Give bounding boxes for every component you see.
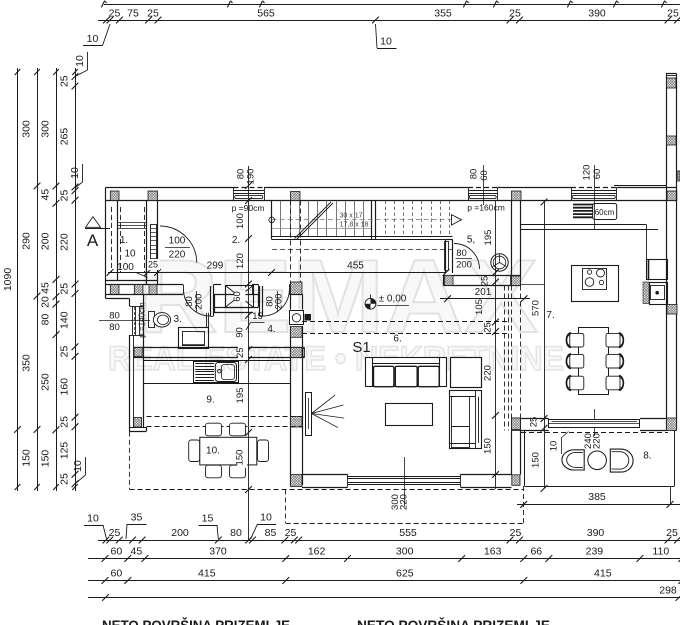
svg-text:10: 10: [69, 167, 81, 179]
svg-text:10: 10: [72, 460, 84, 472]
svg-text:10: 10: [380, 36, 392, 48]
svg-text:150: 150: [483, 438, 494, 454]
svg-text:200: 200: [194, 294, 205, 310]
svg-text:150: 150: [40, 450, 52, 468]
svg-text:A: A: [87, 231, 99, 250]
svg-text:S1: S1: [352, 339, 370, 356]
svg-text:100: 100: [169, 236, 186, 247]
svg-text:25: 25: [59, 473, 71, 485]
svg-text:415: 415: [198, 568, 216, 580]
svg-text:25: 25: [109, 527, 121, 539]
svg-text:85: 85: [265, 527, 277, 539]
svg-text:355: 355: [434, 8, 452, 20]
svg-text:239: 239: [586, 546, 604, 558]
svg-text:25: 25: [59, 416, 71, 428]
svg-text:162: 162: [308, 546, 326, 558]
svg-text:25: 25: [285, 527, 297, 539]
svg-text:105: 105: [474, 299, 485, 315]
svg-text:220: 220: [399, 494, 410, 510]
svg-text:100: 100: [235, 213, 246, 229]
svg-text:10: 10: [87, 513, 99, 525]
svg-text:80: 80: [456, 248, 467, 259]
svg-text:75: 75: [127, 8, 139, 20]
svg-text:7.: 7.: [546, 310, 554, 321]
svg-text:160: 160: [59, 378, 71, 396]
svg-text:15: 15: [202, 513, 214, 525]
svg-text:565: 565: [257, 8, 275, 20]
svg-text:200: 200: [40, 232, 52, 250]
svg-text:9.: 9.: [206, 395, 214, 406]
svg-text:10: 10: [549, 441, 560, 452]
svg-text:300: 300: [21, 120, 33, 138]
svg-text:10: 10: [74, 55, 86, 67]
svg-text:66: 66: [530, 546, 542, 558]
svg-text:150: 150: [21, 449, 33, 467]
svg-text:625: 625: [396, 568, 414, 580]
svg-text:60: 60: [232, 291, 243, 302]
svg-text:25: 25: [529, 417, 540, 428]
svg-text:265: 265: [59, 128, 71, 146]
svg-text:NETO POVRŠINA PRIZEMLJE: NETO POVRŠINA PRIZEMLJE: [102, 616, 290, 625]
svg-text:25: 25: [480, 276, 491, 287]
svg-text:p =160cm: p =160cm: [467, 203, 505, 213]
svg-text:p =90cm: p =90cm: [232, 203, 265, 213]
svg-text:220: 220: [592, 433, 603, 449]
svg-text:220: 220: [483, 365, 494, 381]
svg-text:1.: 1.: [120, 235, 128, 246]
svg-text:100: 100: [117, 262, 134, 273]
svg-text:200: 200: [456, 260, 472, 271]
svg-text:390: 390: [587, 527, 605, 539]
svg-text:4.: 4.: [267, 324, 275, 335]
svg-text:30 x 17: 30 x 17: [340, 213, 363, 220]
svg-text:370: 370: [209, 546, 227, 558]
svg-text:150: 150: [531, 452, 542, 468]
svg-text:80: 80: [40, 314, 52, 326]
svg-text:45: 45: [131, 546, 143, 558]
svg-text:25: 25: [109, 8, 121, 20]
svg-text:150: 150: [235, 450, 246, 466]
svg-text:385: 385: [588, 491, 606, 503]
svg-text:80: 80: [230, 527, 242, 539]
svg-text:220: 220: [169, 250, 186, 261]
svg-text:555: 555: [399, 527, 417, 539]
svg-text:195: 195: [235, 388, 246, 404]
svg-text:80: 80: [109, 311, 120, 322]
svg-text:299: 299: [207, 261, 224, 272]
svg-text:60cm: 60cm: [595, 208, 615, 217]
svg-text:415: 415: [594, 568, 612, 580]
svg-text:20: 20: [40, 296, 52, 308]
svg-text:1090: 1090: [2, 268, 14, 292]
svg-text:10.: 10.: [206, 446, 220, 457]
svg-text:3.: 3.: [174, 314, 182, 325]
svg-text:25: 25: [235, 347, 246, 358]
svg-text:25: 25: [510, 527, 522, 539]
svg-text:300: 300: [396, 546, 414, 558]
svg-text:220: 220: [59, 233, 71, 251]
svg-text:110: 110: [652, 546, 669, 558]
svg-text:200: 200: [171, 527, 189, 539]
svg-text:NETO POVRŠINA PRIZEMLJE: NETO POVRŠINA PRIZEMLJE: [357, 616, 550, 625]
svg-text:60: 60: [111, 568, 123, 580]
svg-text:250: 250: [40, 373, 52, 391]
svg-text:390: 390: [588, 8, 606, 20]
svg-text:60: 60: [479, 170, 490, 181]
svg-text:25: 25: [667, 8, 679, 20]
svg-text:195: 195: [483, 230, 494, 246]
svg-text:570: 570: [531, 300, 542, 316]
svg-text:350: 350: [21, 354, 33, 372]
svg-text:190: 190: [246, 169, 257, 185]
svg-text:p =140cm: p =140cm: [138, 302, 147, 338]
svg-text:201: 201: [475, 287, 492, 298]
svg-text:6.: 6.: [393, 334, 401, 345]
svg-text:300: 300: [40, 120, 52, 138]
svg-text:25: 25: [59, 283, 71, 295]
svg-text:120: 120: [235, 253, 246, 269]
svg-text:25: 25: [666, 527, 678, 539]
svg-text:60: 60: [592, 169, 603, 180]
svg-text:25: 25: [509, 8, 521, 20]
svg-text:35: 35: [131, 512, 143, 524]
svg-text:25: 25: [59, 346, 71, 358]
svg-text:125: 125: [59, 442, 71, 460]
svg-text:8.: 8.: [643, 451, 651, 462]
svg-text:10: 10: [87, 33, 99, 45]
svg-text:25: 25: [147, 8, 159, 20]
svg-text:10: 10: [260, 512, 272, 524]
svg-text:5,: 5,: [467, 235, 475, 246]
svg-text:140: 140: [59, 311, 71, 329]
svg-text:298: 298: [659, 585, 677, 597]
svg-text:25: 25: [59, 75, 71, 87]
svg-text:80: 80: [109, 322, 120, 333]
svg-text:17,8 x 18: 17,8 x 18: [340, 222, 369, 229]
svg-text:15: 15: [252, 311, 263, 322]
svg-text:45: 45: [40, 189, 52, 201]
svg-text:290: 290: [21, 232, 33, 250]
svg-text:2.: 2.: [232, 235, 240, 246]
svg-text:163: 163: [484, 546, 502, 558]
svg-text:120: 120: [582, 165, 593, 181]
svg-text:200: 200: [274, 294, 285, 310]
svg-text:455: 455: [347, 261, 364, 272]
svg-text:25: 25: [59, 190, 71, 202]
svg-text:80: 80: [469, 169, 480, 180]
svg-text:25: 25: [483, 322, 494, 333]
svg-text:10: 10: [124, 249, 136, 260]
svg-text:± 0,00: ± 0,00: [379, 294, 407, 305]
svg-text:60: 60: [111, 546, 123, 558]
svg-text:45: 45: [40, 282, 52, 294]
svg-text:25: 25: [148, 260, 158, 270]
svg-text:90: 90: [235, 327, 246, 338]
